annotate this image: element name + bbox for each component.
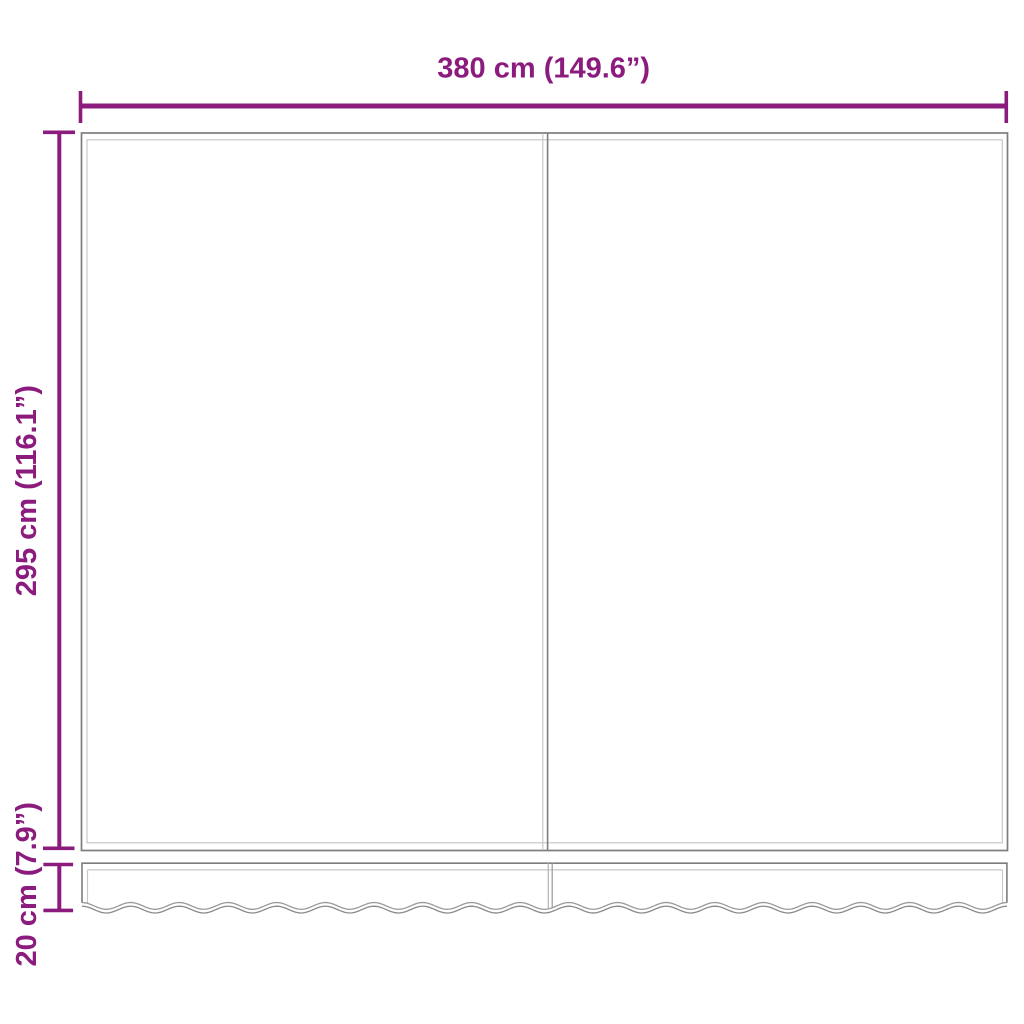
svg-text:295 cm (116.1”): 295 cm (116.1”) bbox=[11, 385, 43, 596]
svg-text:380 cm (149.6”): 380 cm (149.6”) bbox=[437, 53, 650, 85]
svg-text:20 cm (7.9”): 20 cm (7.9”) bbox=[11, 802, 43, 966]
